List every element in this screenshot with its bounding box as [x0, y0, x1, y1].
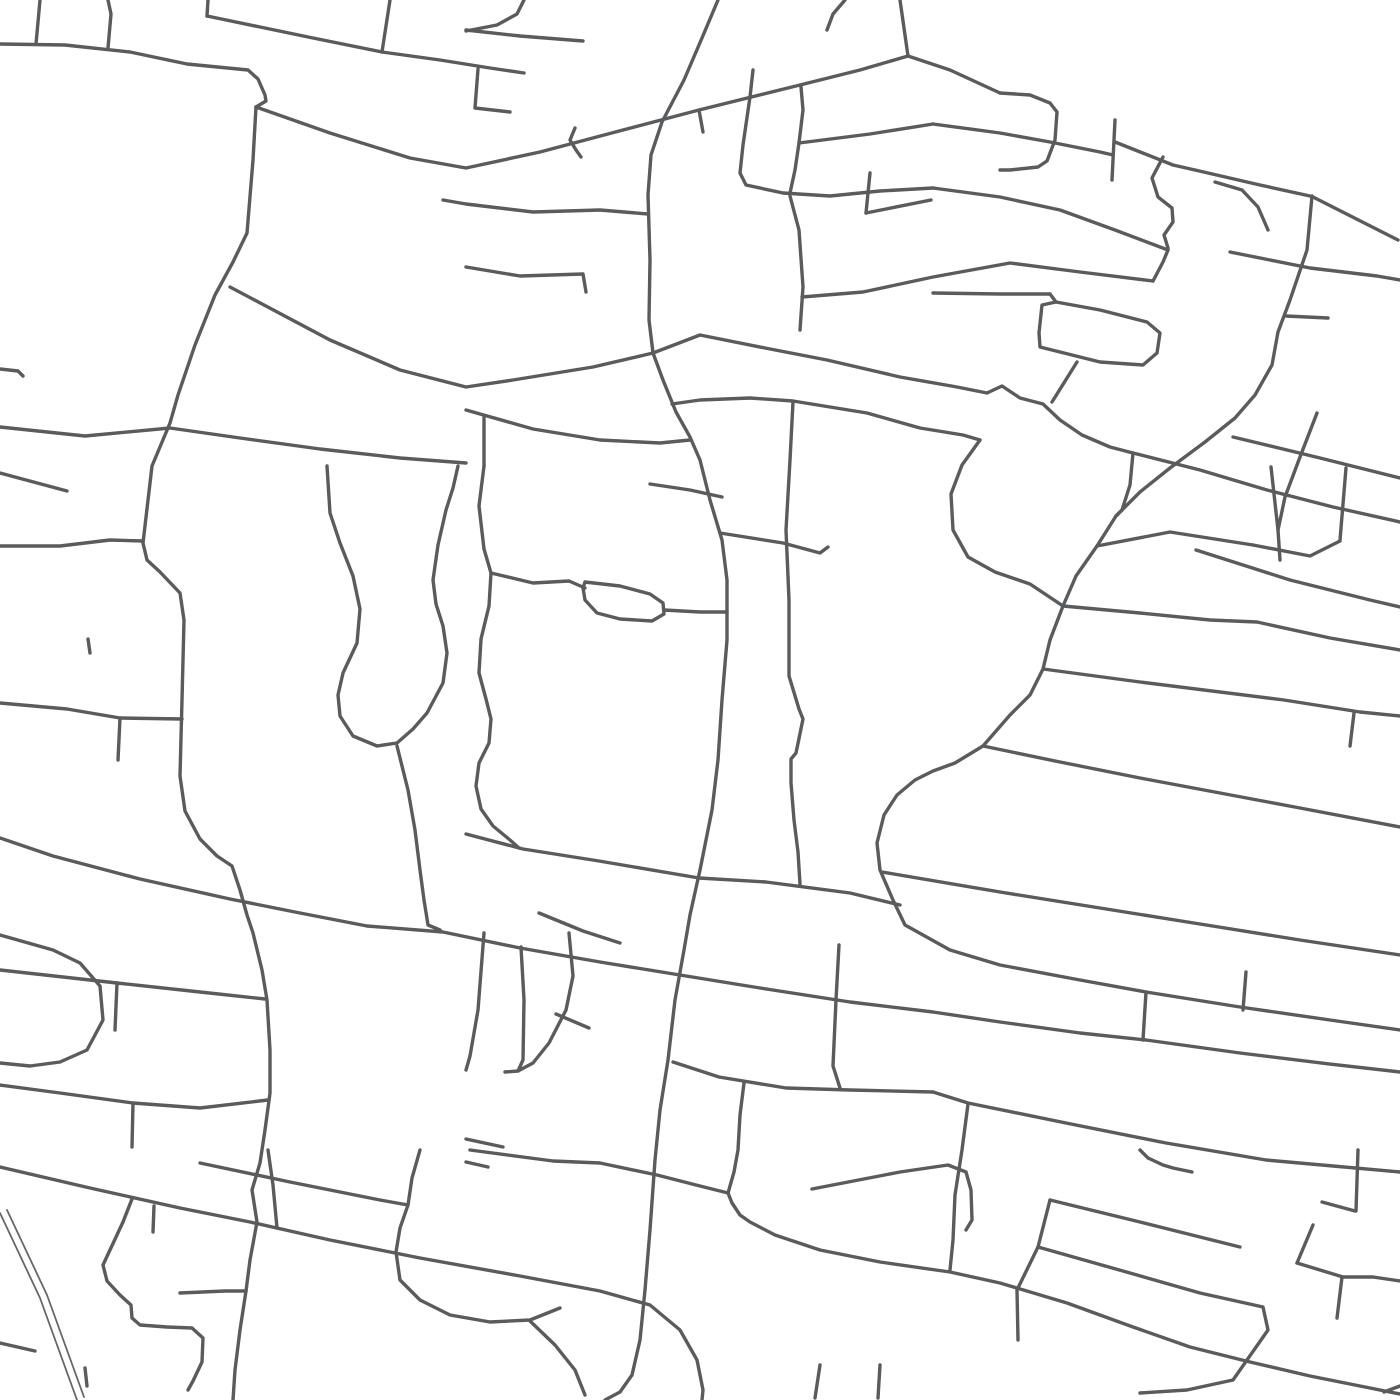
map-viewport[interactable]: [0, 0, 1400, 1400]
road-line: [1286, 316, 1328, 318]
map-background: [0, 0, 1400, 1400]
road-line: [180, 1291, 246, 1293]
road-line: [115, 983, 117, 1030]
road-line: [153, 1206, 154, 1232]
road-line: [933, 293, 1050, 294]
road-line: [88, 639, 90, 653]
road-line: [878, 1365, 880, 1398]
road-line: [664, 610, 727, 612]
road-line: [118, 718, 120, 760]
road-line: [207, 0, 208, 16]
road-line: [85, 1368, 87, 1386]
street-map-canvas[interactable]: [0, 0, 1400, 1400]
road-line: [132, 1103, 133, 1147]
road-line: [1356, 1150, 1358, 1211]
